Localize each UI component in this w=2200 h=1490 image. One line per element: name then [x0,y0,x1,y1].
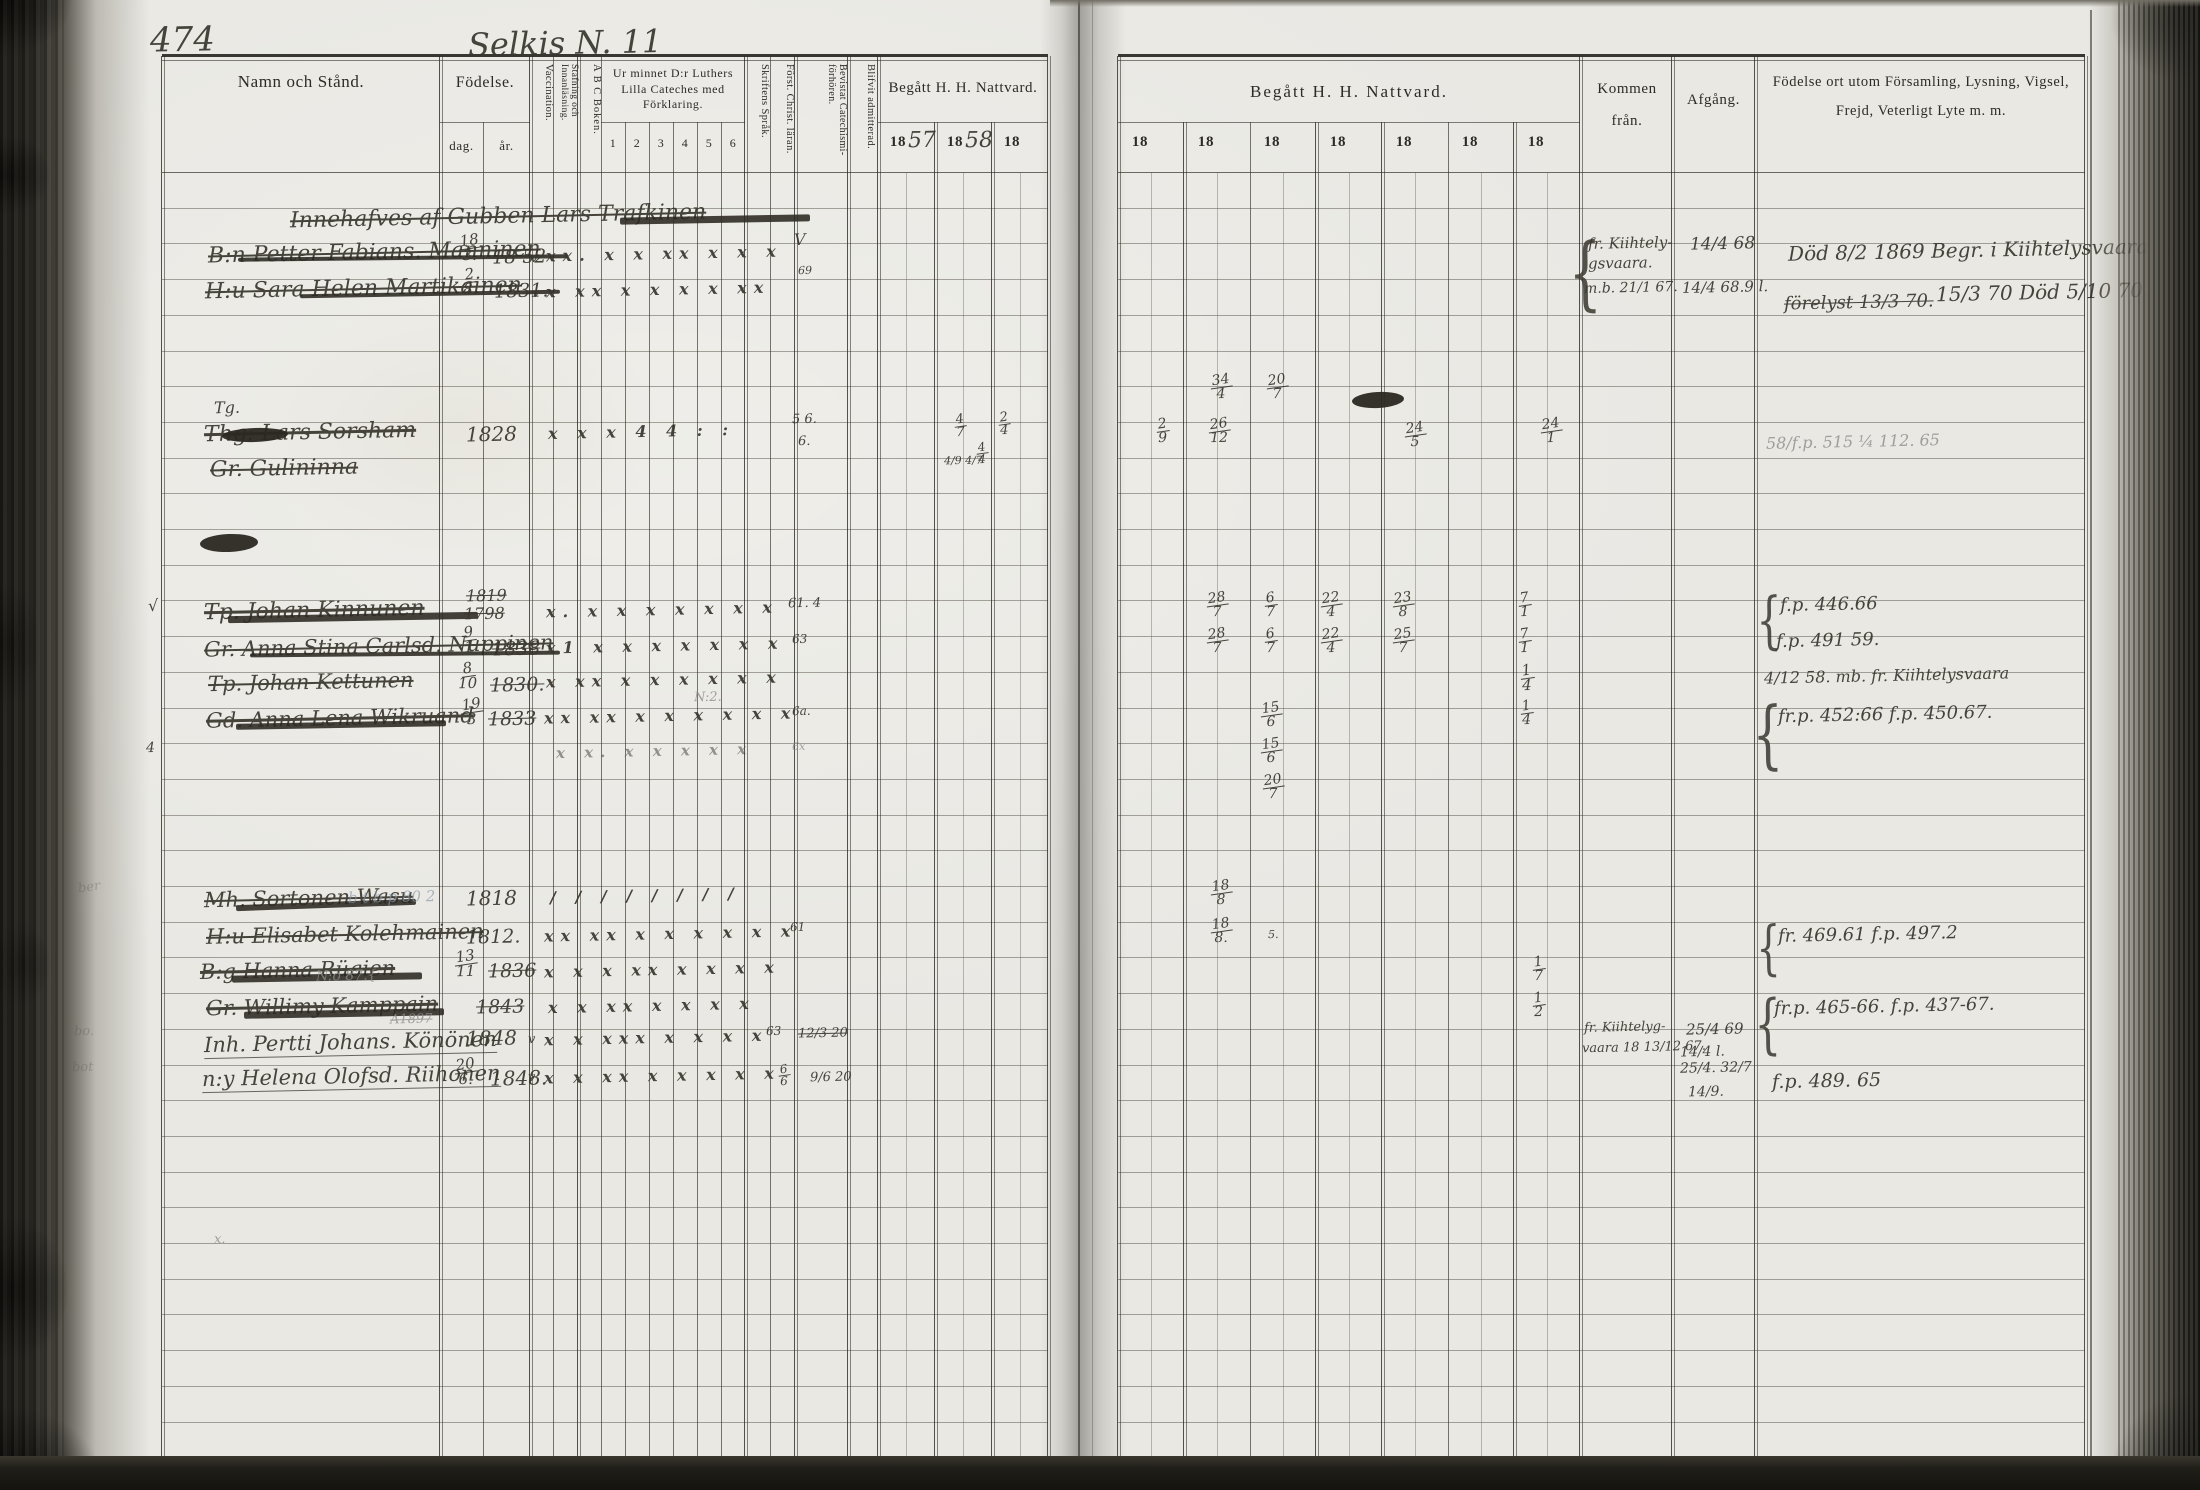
row22-birth-year: 1836 [488,959,537,982]
grid-line [162,850,1048,851]
column-header-stafning: Stafning och Innanläsning. [555,64,579,170]
row15-marks: xx xx x x x x x x [544,703,798,727]
grid-line [442,56,443,1457]
kommen-row2b: gsvaara. [1588,253,1653,272]
grid-line [1118,1422,2085,1423]
nattvard-year-cell: 18 [1514,134,1558,151]
column-header-vaccination: Vaccination. [534,64,554,170]
book-fold-line [1092,0,1093,1490]
column-header-bevistat: Bevistat Catechismi-förhören. [799,64,847,170]
afgang-row25a: 25/4. 32/7 [1680,1059,1752,1076]
cateches-col-number: 3 [649,136,673,151]
grid-line [440,122,530,123]
row22-birth-day: 1311 [454,950,478,979]
grid-line [1183,122,1184,1457]
column-header-nattvard-right: Begått H. H. Nattvard. [1118,82,1580,102]
row20-marks: / / / / / / / / [550,884,741,907]
grid-line [1151,172,1152,1457]
grid-line [1118,1207,2085,1208]
row7-bevistat-a: 5 6. [792,412,817,428]
scan-edge-right-texture [2118,0,2200,1490]
grid-line [1448,122,1449,1457]
note-row13: f.p. 491 59. [1776,629,1880,652]
grid-line [1118,386,2085,387]
frac-struck: 207 [1266,374,1288,401]
pencil-note: N:2. [694,690,722,706]
column-header-abc: A B C Boken. [582,64,602,170]
row21-marks: xx xx x x x x x x [544,921,798,945]
column-header-cateches: Ur minnet D:r Luthers Lilla Cateches med… [601,66,745,113]
row15-birth-year: 1833 [488,707,537,730]
grid-line [850,56,851,1457]
note-row7: 58/f.p. 515 ¼ 112. 65 [1766,430,1940,453]
row14-name: Tp. Johan Kettunen [208,668,414,696]
row13-bevistat: 63 [792,632,808,646]
row12-year-b: 1798 [464,604,505,624]
grid-line [162,1136,1048,1137]
kommen-row3: m.b. 21/1 67. [1584,279,1678,297]
grid-line [1186,122,1187,1457]
note-row23: fr.p. 465-66. f.p. 437-67. [1774,994,1995,1020]
grid-line [1118,493,2085,494]
row14-birth-day: 810 [458,662,478,691]
note-row12: f.p. 446.66 [1780,593,1878,616]
row7-natt-g: 245 [1404,422,1426,449]
grid-line [878,122,1048,123]
row24-pencil: A1897 [390,1012,433,1028]
column-header-forst: Först. Christ. läran. [773,64,795,170]
grid-line [162,1207,1048,1208]
column-header-notes: Födelse ort utom Församling, Lysning, Vi… [1764,68,2078,126]
grid-line [1118,122,1580,123]
row15-natt7: 14 [1520,700,1533,727]
row12-natt3: 224 [1320,592,1342,619]
row20-natt2: 188 [1210,880,1232,907]
note-row25: f.p. 489. 65 [1772,1069,1882,1093]
row23-birth-year: 1843 [476,995,525,1018]
nattvard-year-handwritten: 57 [908,128,937,154]
grid-line [1118,54,2085,57]
row25-birth-year: 1848. [490,1065,548,1090]
row3-vacc: v [532,286,540,301]
grid-line [649,122,650,1457]
note-brace: { [1756,913,1781,982]
grid-line [1118,1314,2085,1315]
page-edge-line [2090,10,2092,1480]
grid-line [1118,886,2085,887]
row15-birth-day: 193 [460,698,484,727]
grid-line [162,1350,1048,1351]
row25-bevistat: 9/6 20 [810,1070,852,1086]
row13-marks: x1 x x x x x x x [546,634,785,658]
row21-natt3: 5. [1268,928,1279,941]
row20-pencil: b t b p 80 2 [348,887,436,907]
grid-line [1384,122,1385,1457]
grid-line [847,56,848,1457]
column-header-fodelse: Födelse. [440,74,530,92]
grid-line [1118,850,2085,851]
row2-marks: xx. x x xx x x x [546,242,783,266]
row21-birth-year: 1812. [466,925,521,948]
grid-line [1118,1279,2085,1280]
book-fold-shadow [1040,0,1126,1490]
grid-line [1020,172,1021,1457]
kommen-row24a: fr. Kiihtelyg- [1584,1019,1666,1036]
nattvard-year-cell: 18 [1448,134,1492,151]
row16-natt3: 156 [1260,738,1282,765]
grid-line [625,122,626,1457]
row22-pencil: N:o 87.{ [316,967,377,984]
grid-line [1547,172,1548,1457]
grid-line [991,122,992,1457]
grid-line [162,315,1048,316]
row7-birth-year: 1828 [466,421,517,446]
grid-line [601,122,745,123]
grid-line [162,1172,1048,1173]
grid-line [721,122,722,1457]
row25-forst: 66 [778,1064,790,1087]
row15-bevistat: 6a. [792,704,811,718]
grid-line [1118,458,2085,459]
note-brace: { [1754,985,1782,1062]
grid-line [1415,172,1416,1457]
afgang-row24b: 14/4 l. [1680,1044,1725,1061]
cateches-col-number: 4 [673,136,697,151]
kommen-row2a: fr. Kiihtely- [1588,233,1673,253]
afgang-row24a: 25/4 69 [1686,1019,1744,1038]
grid-line [937,122,938,1457]
grid-line [1118,1100,2085,1101]
grid-line [1674,56,1675,1457]
row24-skrift: 63 [766,1024,782,1038]
row12-natt1: 287 [1206,592,1228,619]
row21-name: H:u Elisabet Kolehmainen [206,919,484,949]
nattvard-year-cell: 18 [1184,134,1228,151]
row25-marks: x x xx x x x x x [544,1064,781,1088]
grid-line [439,56,440,1457]
row7-natt-f: 2612 [1208,418,1230,445]
row13-natt5: 71 [1518,628,1531,655]
grid-line [1283,172,1284,1457]
row2-admit-year: 69 [798,264,812,277]
row15-natt3: 156 [1260,702,1282,729]
note-row14: 4/12 58. mb. fr. Kiihtelysvaara [1764,663,2010,687]
grid-line [162,779,1048,780]
grid-line [162,529,1048,530]
afgang-row3: 14/4 68.9 l. [1682,277,1769,297]
row7-natt-a: 47 [954,414,967,439]
grid-line [1318,122,1319,1457]
row7-bevistat-b: 6. [798,434,811,449]
row12-year-a: 1819 [466,586,507,606]
row24-bevistat: 12/3 20 [798,1025,848,1041]
scan-edge-bottom [0,1456,2200,1490]
row23-marks: x x xx x x x x [548,994,756,1017]
grid-line [162,1100,1048,1101]
grid-line [963,172,964,1457]
grid-line [1118,1065,2085,1066]
column-header-namn: Namn och Stånd. [162,72,440,92]
grid-line [164,56,165,1457]
grid-line [1118,565,2085,566]
row13-natt2: 67 [1264,628,1277,655]
page-title: Selkis N. 11 [468,22,663,64]
grid-line [162,1243,1048,1244]
note-row3a: förelyst 13/3 70. [1784,290,1934,314]
scan-edge-top [1050,0,2200,7]
row13-birth-year: 1838 [492,637,541,660]
row13-natt1: 287 [1206,628,1228,655]
grid-line [162,565,1048,566]
row14-marks: x xx x x x x x x [546,668,783,692]
grid-line [1516,122,1517,1457]
scan-edge-left-texture [0,0,64,1490]
row7-natt-e: 29 [1156,418,1169,445]
grid-line [1118,172,2085,173]
row12-marks: x. x x x x x x x [546,598,779,622]
row7-prefix: Tg. [214,398,240,418]
grid-line [1118,422,2085,423]
grid-line [1118,957,2085,958]
nattvard-year-handwritten: 58 [965,128,994,154]
page-number: 474 [150,19,216,60]
grid-line [934,122,935,1457]
row12-natt4: 238 [1392,592,1414,619]
cateches-col-number: 2 [625,136,649,151]
row16-marks: x x. x x x x x [556,740,753,762]
row14-natt: 14 [1520,664,1534,693]
row25-birth-day: 206. [454,1058,478,1087]
column-header-afgang: Afgång. [1672,92,1755,109]
grid-line [880,56,881,1457]
nattvard-year-cell: 18 [1382,134,1426,151]
row8-name: Gr. Gulininna [210,454,359,482]
grid-line [162,1386,1048,1387]
grid-line [1118,208,2085,209]
grid-line [1118,1136,2085,1137]
row12-natt5: 71 [1518,592,1531,619]
cateches-col-number: 5 [697,136,721,151]
row2-birth-day: 183. [458,234,482,263]
note-row21: fr. 469.61 f.p. 497.2 [1778,922,1958,947]
grid-line [1118,1243,2085,1244]
row2-vacc: v [530,250,538,266]
row3-birth-day: 28. [463,268,478,297]
column-header-kommen: Kommen från. [1592,74,1662,137]
grid-line [673,122,674,1457]
grid-line [162,172,1048,173]
book-fold-line [1078,0,1080,1490]
nattvard-year-cell: 18 [992,134,1032,151]
grid-line [994,122,995,1457]
row12-natt2: 67 [1264,592,1277,619]
row20-birth-year: 1818 [466,885,517,910]
grid-line [161,56,162,1457]
grid-line [1671,56,1672,1457]
row13-natt4: 257 [1392,628,1414,655]
grid-line [2084,56,2085,1457]
row22-marks: x x x xx x x x x [544,958,781,982]
grid-line [1315,122,1316,1457]
row2-admit: V [794,230,806,249]
frac-struck: 344 [1210,374,1232,401]
grid-line [1250,122,1251,1457]
column-header-ar: år. [483,138,530,154]
grid-line [1118,529,2085,530]
grid-line [770,56,771,1457]
column-header-blifvit: Blifvit admitterad. [854,64,876,170]
row22-natt7: 17 [1532,956,1545,983]
grid-line [162,1422,1048,1423]
grid-line [906,172,907,1457]
row3-marks: x xx x x x x xx [546,278,771,302]
grid-line [1513,122,1514,1457]
row25-vacc: v [528,1070,536,1085]
row16-bevistat: 6x [792,740,805,753]
column-header-nattvard-left: Begått H. H. Nattvard. [878,80,1048,97]
row24-name: Inh. Pertti Johans. Könönen [204,1027,497,1059]
row7-marks: x x x 4 4 : : [548,420,735,443]
column-header-skriftens: Skriftens Språk. [748,64,770,170]
nattvard-year-cell: 18 [1250,134,1294,151]
column-header-dag: dag. [440,138,483,154]
row13-birth-day: 91 [462,626,476,655]
afgang-row2: 14/4 68 [1690,233,1756,254]
grid-line [1481,172,1482,1457]
stray-mark: x. [214,1232,226,1247]
grid-line [1118,60,2085,61]
grid-line [877,56,878,1457]
grid-line [1381,122,1382,1457]
row7-natt-d: 4/9 4/7 [944,454,983,468]
cateches-col-number: 6 [721,136,745,151]
scanned-church-record-page: Namn och Stånd. Födelse. dag. år. Vaccin… [0,0,2200,1490]
row2-birth-year: 18 52 [492,245,547,268]
grid-line [1118,1350,2085,1351]
grid-line [1118,351,2085,352]
row23-natt7: 12 [1532,992,1545,1019]
note-row15: fr.p. 452:66 f.p. 450.67. [1778,702,1993,727]
note-brace: { [1752,691,1784,779]
row17-natt3: 207 [1262,774,1284,801]
row13-natt3: 224 [1320,628,1342,655]
grid-line [162,1314,1048,1315]
row24-vacc: v [528,1032,536,1047]
row24-birth-year: 1848 [466,1025,517,1050]
grid-line [1118,1172,2085,1173]
grid-line [1118,815,2085,816]
afgang-row25b: 14/9. [1688,1084,1724,1101]
grid-line [162,815,1048,816]
cateches-col-number: 1 [601,136,625,151]
row24-marks: x x xxx x x x x [544,1026,769,1050]
row21-natt2: 188. [1210,918,1232,945]
grid-line [794,56,795,1457]
row7-natt-h: 241 [1540,418,1562,445]
grid-line [553,56,554,1457]
grid-line [1349,172,1350,1457]
grid-line [1217,172,1218,1457]
nattvard-year-cell: 18 [1316,134,1360,151]
ink-blot [200,533,259,553]
grid-line [162,1279,1048,1280]
grid-line [697,122,698,1457]
row3-birth-year: 1831. [494,279,549,302]
row7-natt-b: 24 [998,412,1011,437]
grid-line [1118,1386,2085,1387]
ink-blot [1352,391,1405,410]
row14-birth-year: 1830. [490,673,545,696]
row12-bevistat: 61. 4 [788,596,821,612]
